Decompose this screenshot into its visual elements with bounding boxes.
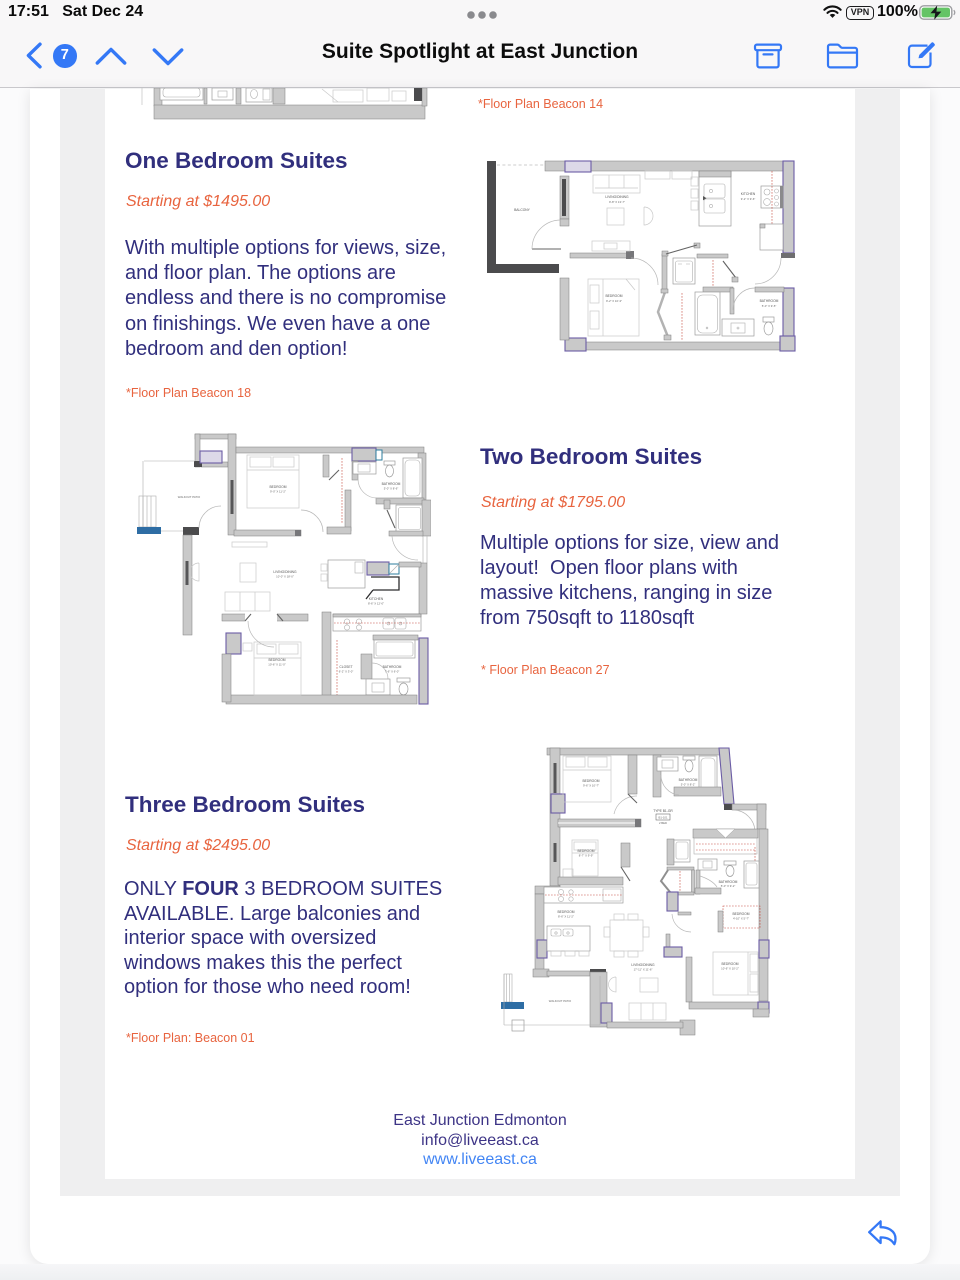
svg-text:BEDROOM: BEDROOM xyxy=(268,658,285,662)
svg-text:5'-0" X 9'-5": 5'-0" X 9'-5" xyxy=(762,304,777,308)
svg-text:KITCHEN: KITCHEN xyxy=(741,192,756,196)
svg-text:LIVING/DINING: LIVING/DINING xyxy=(605,195,629,199)
svg-text:BEDROOM: BEDROOM xyxy=(605,294,622,298)
svg-text:BATHROOM: BATHROOM xyxy=(760,299,779,303)
svg-text:BALCONY: BALCONY xyxy=(514,208,531,212)
svg-text:5'-0" X 9'-2": 5'-0" X 9'-2" xyxy=(721,884,736,888)
svg-text:BEDROOM: BEDROOM xyxy=(721,962,738,966)
svg-text:5'-0" X 8'-6": 5'-0" X 8'-6" xyxy=(384,487,399,491)
svg-text:4'-10" X 5'-7": 4'-10" X 5'-7" xyxy=(733,917,749,921)
svg-text:BEDROOM: BEDROOM xyxy=(732,912,749,916)
svg-text:BATHROOM: BATHROOM xyxy=(679,778,698,782)
svg-text:10'-6" X 11'-0": 10'-6" X 11'-0" xyxy=(268,663,285,667)
svg-text:9'-6" X 10'-7": 9'-6" X 10'-7" xyxy=(583,784,599,788)
svg-text:9'-8" X 13'-7": 9'-8" X 13'-7" xyxy=(609,200,625,204)
svg-text:CLOSET: CLOSET xyxy=(339,665,352,669)
svg-text:LIVING/DINING: LIVING/DINING xyxy=(631,963,655,967)
svg-text:7'-6" X 6'-0": 7'-6" X 6'-0" xyxy=(385,670,400,674)
svg-text:BEDROOM: BEDROOM xyxy=(577,849,594,853)
svg-text:TYPE B1-GR: TYPE B1-GR xyxy=(653,809,673,813)
svg-text:10'-6" X 10'-2": 10'-6" X 10'-2" xyxy=(721,967,739,971)
svg-text:9'-2" X 9'-6": 9'-2" X 9'-6" xyxy=(741,197,756,201)
svg-text:5'-0" X 8'-2": 5'-0" X 8'-2" xyxy=(681,783,696,787)
svg-text:17'-11" X 11'-6": 17'-11" X 11'-6" xyxy=(634,968,653,972)
svg-text:BATHROOM: BATHROOM xyxy=(382,482,401,486)
svg-text:KITCHEN: KITCHEN xyxy=(369,597,384,601)
svg-text:8'-6" X 11'-2": 8'-6" X 11'-2" xyxy=(558,915,574,919)
svg-text:9'-2" X 10'-3": 9'-2" X 10'-3" xyxy=(606,299,622,303)
svg-text:BATHROOM: BATHROOM xyxy=(383,665,402,669)
svg-text:2 BED: 2 BED xyxy=(659,821,667,825)
svg-text:BEDROOM: BEDROOM xyxy=(557,910,574,914)
svg-text:6'-2" X 3'-0": 6'-2" X 3'-0" xyxy=(339,670,354,674)
svg-text:8'-7" X 9'-9": 8'-7" X 9'-9" xyxy=(579,854,594,858)
svg-text:8'-6" X 12'-0": 8'-6" X 12'-0" xyxy=(368,602,384,606)
svg-text:B1-101: B1-101 xyxy=(658,816,667,820)
svg-text:BEDROOM: BEDROOM xyxy=(582,779,599,783)
svg-text:9'-0" X 11'-2": 9'-0" X 11'-2" xyxy=(270,490,286,494)
svg-text:LIVING/DINING: LIVING/DINING xyxy=(273,570,297,574)
svg-text:10'-0" X 18'-0": 10'-0" X 18'-0" xyxy=(276,575,294,579)
svg-text:WALKOUT PATIO: WALKOUT PATIO xyxy=(549,999,572,1003)
svg-text:WALKOUT PATIO: WALKOUT PATIO xyxy=(178,495,201,499)
svg-text:BEDROOM: BEDROOM xyxy=(269,485,286,489)
